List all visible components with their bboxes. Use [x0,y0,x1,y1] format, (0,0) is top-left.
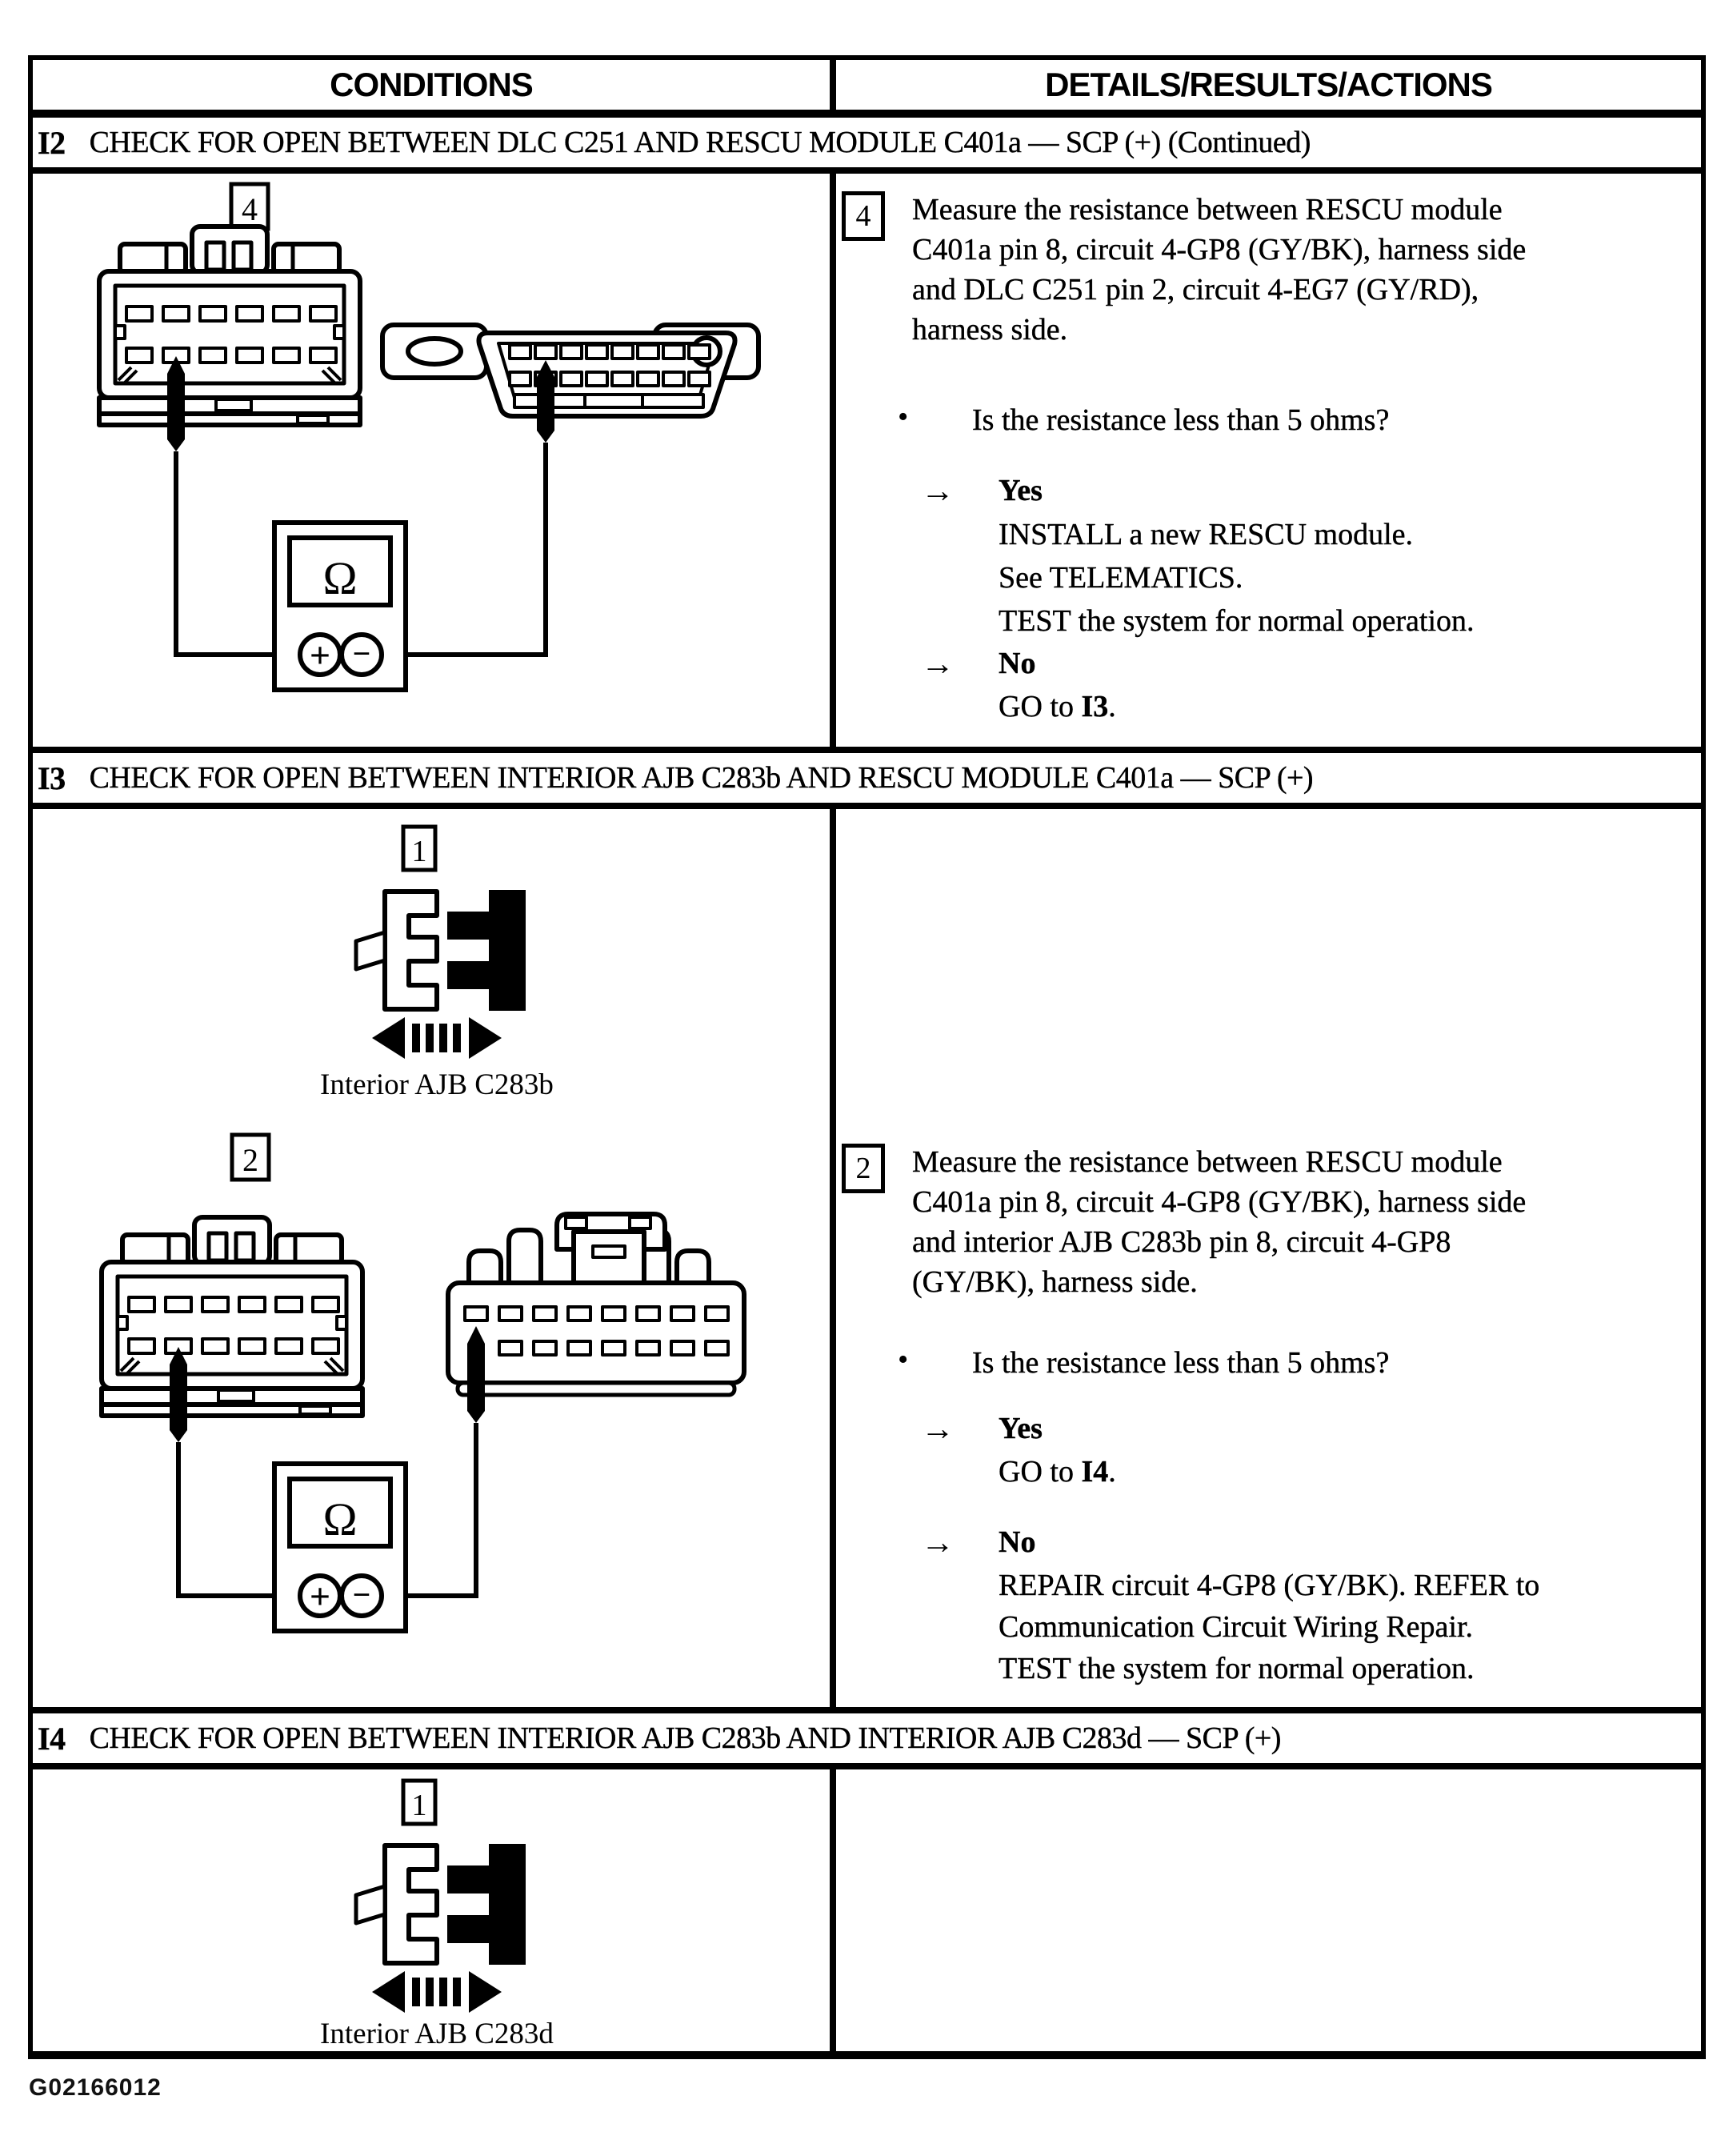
step-i3-body-row: 1 Interior AJB C283b 2 [33,809,1701,1713]
conditions-column-header: CONDITIONS [33,60,836,110]
connector-caption: Interior AJB C283b [320,1068,554,1101]
step-4-badge: 4 [231,184,268,229]
question-text: Is the resistance less than 5 ohms? [972,1342,1389,1384]
test-id: I3 [38,759,66,797]
pinpoint-test-table: CONDITIONS DETAILS/RESULTS/ACTIONS I2 CH… [28,55,1706,2059]
disconnect-connector-icon [356,892,524,1059]
test-title: CHECK FOR OPEN BETWEEN INTERIOR AJB C283… [90,760,1313,795]
yes-label: Yes [999,1408,1043,1449]
no-label: No [999,1521,1035,1563]
step-i2-title-row: I2 CHECK FOR OPEN BETWEEN DLC C251 AND R… [33,118,1701,174]
step-2-badge: 2 [842,1144,885,1193]
i3-conditions-cell: 1 Interior AJB C283b 2 [33,809,836,1707]
step-1-badge: 1 [403,827,435,870]
step-1-badge: 1 [403,1781,435,1824]
no-actions: REPAIR circuit 4-GP8 (GY/BK). REFER to C… [999,1565,1539,1689]
test-title: CHECK FOR OPEN BETWEEN INTERIOR AJB C283… [90,1721,1281,1756]
result-arrow-icon: → [921,1526,955,1560]
yes-action: GO to I4. [999,1451,1116,1493]
no-label: No [999,643,1035,684]
step-i3-title-row: I3 CHECK FOR OPEN BETWEEN INTERIOR AJB C… [33,753,1701,809]
svg-text:1: 1 [412,1789,427,1822]
measure-instruction: Measure the resistance between RESCU mod… [912,190,1656,350]
test-probe-icon [537,360,554,443]
measure-instruction: Measure the resistance between RESCU mod… [912,1142,1656,1302]
result-arrow-icon: → [921,475,955,508]
bullet-icon: • [898,399,908,435]
interior-ajb-connector [448,1214,744,1395]
i2-details-cell: 4 Measure the resistance between RESCU m… [836,174,1701,747]
i3-measurement-diagram: 2 [33,1129,830,1701]
i4-details-cell [836,1769,1701,2051]
table-header-row: CONDITIONS DETAILS/RESULTS/ACTIONS [33,60,1701,118]
plus-terminal: + [310,1576,330,1617]
minus-terminal: − [353,635,371,671]
test-title: CHECK FOR OPEN BETWEEN DLC C251 AND RESC… [90,125,1311,160]
step-i4-title-row: I4 CHECK FOR OPEN BETWEEN INTERIOR AJB C… [33,1713,1701,1769]
test-probe-icon [170,1347,187,1442]
step-4-badge: 4 [842,191,885,241]
bullet-icon: • [898,1342,908,1377]
dlc-connector [382,325,758,416]
rescu-module-connector [99,226,360,425]
ohmmeter: Ω + − [274,1464,406,1631]
details-column-header: DETAILS/RESULTS/ACTIONS [836,60,1701,110]
ohmmeter: Ω + − [274,523,406,690]
connector-caption: Interior AJB C283d [320,2018,554,2050]
yes-actions: INSTALL a new RESCU module. See TELEMATI… [999,513,1475,643]
step-2-badge: 2 [232,1135,269,1180]
minus-terminal: − [353,1577,371,1613]
i4-disconnect-diagram: 1 Interior AJB C283d [33,1769,830,2051]
i4-conditions-cell: 1 Interior AJB C283d [33,1769,836,2051]
i3-disconnect-diagram: 1 Interior AJB C283b [33,816,830,1104]
i2-measurement-diagram: 4 [33,174,830,747]
step-i4-body-row: 1 Interior AJB C283d [33,1769,1701,2051]
ohm-display: Ω [322,552,357,604]
i3-details-cell: 2 Measure the resistance between RESCU m… [836,809,1701,1707]
svg-text:2: 2 [242,1142,258,1178]
question-text: Is the resistance less than 5 ohms? [972,399,1389,441]
test-id: I2 [38,124,66,162]
test-probe-icon [467,1326,485,1423]
no-action: GO to I3. [999,686,1116,727]
svg-text:4: 4 [242,191,258,227]
svg-text:1: 1 [412,835,427,868]
ohm-display: Ω [322,1493,357,1545]
yes-label: Yes [999,470,1043,511]
test-probe-icon [167,356,185,451]
rescu-module-connector [102,1217,362,1416]
test-id: I4 [38,1720,66,1757]
plus-terminal: + [310,635,330,675]
result-arrow-icon: → [921,647,955,681]
figure-code: G02166012 [29,2074,162,2102]
disconnect-connector-icon [356,1845,524,2013]
step-i2-body-row: 4 [33,174,1701,753]
i2-conditions-cell: 4 [33,174,836,747]
manual-page: CONDITIONS DETAILS/RESULTS/ACTIONS I2 CH… [0,0,1725,2156]
result-arrow-icon: → [921,1413,955,1446]
